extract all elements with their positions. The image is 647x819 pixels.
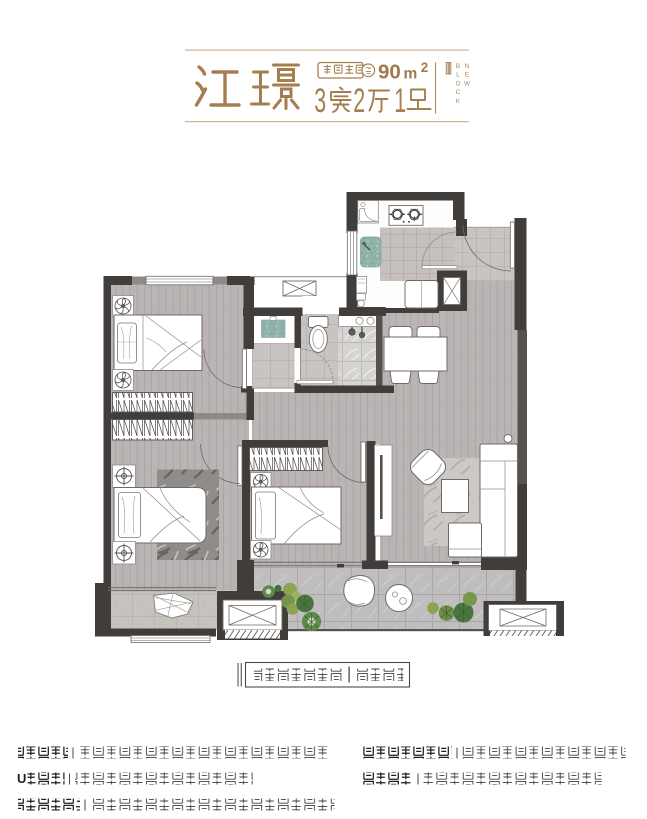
svg-text:3: 3 (314, 82, 326, 120)
svg-text:O: O (456, 80, 461, 87)
svg-text:U: U (17, 771, 26, 786)
svg-text:W: W (464, 80, 470, 87)
svg-text:C: C (456, 89, 461, 96)
svg-text:2: 2 (421, 60, 429, 75)
svg-text:1: 1 (394, 82, 406, 120)
svg-text:2: 2 (353, 82, 365, 120)
svg-text:B: B (456, 63, 460, 70)
svg-text:N: N (465, 63, 469, 70)
svg-text:90: 90 (378, 60, 401, 83)
svg-text:L: L (456, 72, 460, 79)
svg-text:m: m (404, 65, 418, 82)
svg-text:E: E (465, 72, 469, 79)
